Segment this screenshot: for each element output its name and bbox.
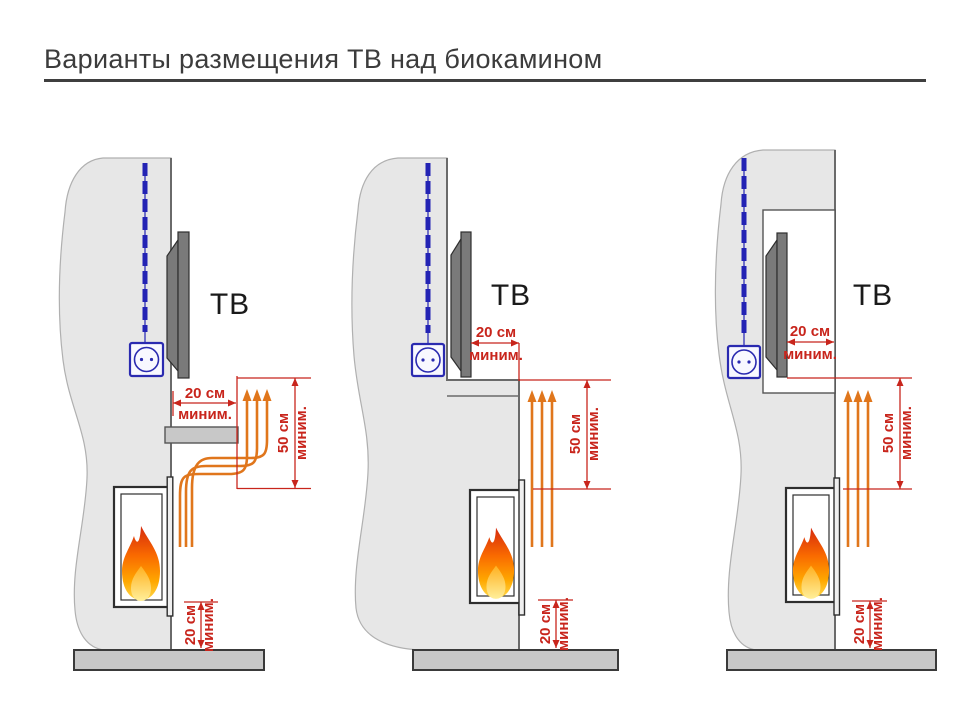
shelf [165,427,238,443]
dimension-floor-clearance: 20 см миним. [182,598,218,652]
floor-clearance-qualifier: миним. [200,598,217,652]
floor-clearance-value: 20 см [537,604,554,644]
power-socket-icon [728,346,760,378]
tv-side-view [451,232,471,377]
floor-clearance-qualifier: миним. [869,597,886,651]
dimensions: 20 см миним. 50 см миним. 20 см миним. [173,376,311,652]
dimension-tv-clearance: 20 см миним. [469,324,523,381]
flue-clearance-value: 50 см [567,414,584,454]
fireplace [114,477,173,616]
flue-clearance-qualifier: миним. [293,406,310,460]
floor [74,650,264,670]
tv-clearance-value: 20 см [476,324,516,341]
floor-clearance-qualifier: миним. [555,597,572,651]
tv-label: ТВ [210,288,250,321]
diagram-variant-2: ТВ 20 см миним. [345,140,630,688]
fireplace-glass [519,480,525,615]
heat-arrows [844,390,873,547]
diagram-variant-1: ТВ 20 см миним. [40,140,320,688]
flue-clearance-qualifier: миним. [585,407,602,461]
fireplace [470,480,525,615]
flue-clearance-qualifier: миним. [898,406,915,460]
tv-label: ТВ [491,279,531,312]
tv-side-view [167,232,189,378]
power-socket-icon [130,343,163,376]
tv-clearance-qualifier: миним. [469,347,523,364]
dimension-floor-clearance: 20 см миним. [537,597,573,651]
fireplace-glass [167,477,173,616]
title-underline [44,79,926,82]
tv-clearance-value: 20 см [185,385,225,402]
flue-clearance-value: 50 см [275,413,292,453]
dimension-floor-clearance: 20 см миним. [851,597,887,651]
floor [727,650,936,670]
fireplace [786,478,840,615]
heat-arrows [528,390,557,547]
tv-clearance-qualifier: миним. [178,406,232,423]
diagram-variant-3: ТВ 20 см миним. 50 с [680,140,965,688]
floor-clearance-value: 20 см [851,604,868,644]
floor-clearance-value: 20 см [182,605,199,645]
fireplace-glass [834,478,840,615]
dimension-tv-clearance: 20 см миним. [173,385,236,423]
floor [413,650,618,670]
tv-clearance-qualifier: миним. [783,346,837,363]
tv-clearance-value: 20 см [790,323,830,340]
tv-label: ТВ [853,279,893,312]
flue-clearance-value: 50 см [880,413,897,453]
power-socket-icon [412,344,444,376]
page-title: Варианты размещения ТВ над биокамином [44,44,602,75]
